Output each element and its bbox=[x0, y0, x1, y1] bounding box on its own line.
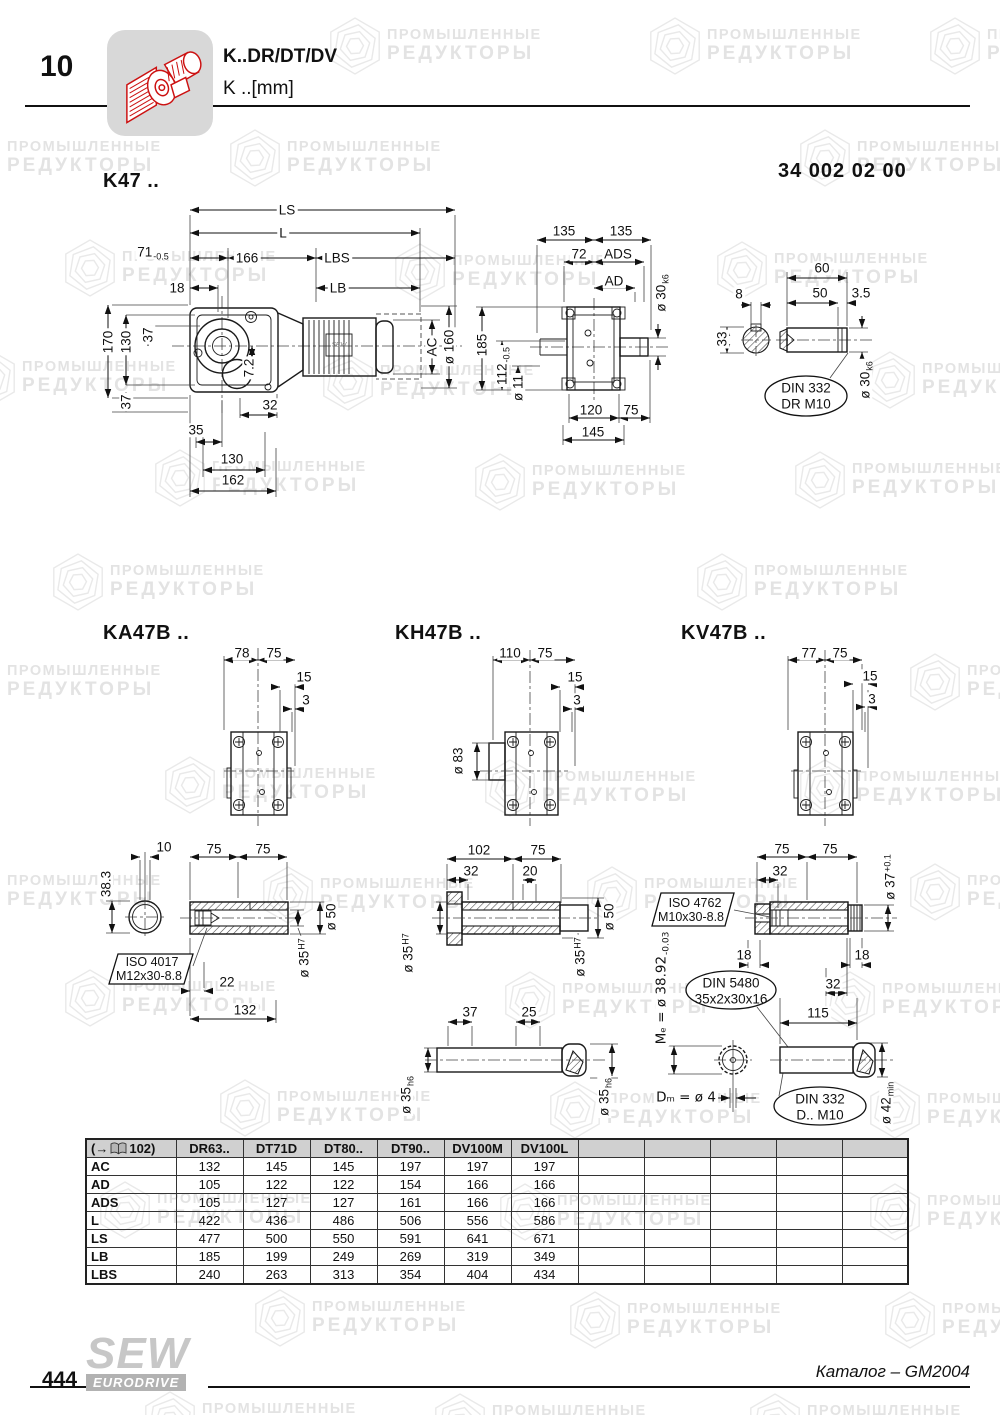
dim-label: 120 bbox=[578, 403, 605, 417]
table-cell: 434 bbox=[511, 1266, 578, 1285]
table-cell: 122 bbox=[243, 1176, 310, 1194]
dim-label: 37 bbox=[119, 392, 133, 411]
dim-label: 112-0.5 bbox=[495, 345, 509, 387]
dim-label: LS bbox=[277, 203, 298, 217]
dim-label: 32 bbox=[770, 864, 789, 878]
standard-callout: 35x2x30x16 bbox=[693, 992, 770, 1006]
dim-label: 75 bbox=[772, 842, 791, 856]
dim-label: 130 bbox=[119, 329, 133, 356]
catalog-page: ПРОМЫШЛЕННЫЕРЕДУКТОРЫПРОМЫШЛЕННЫЕРЕДУКТО… bbox=[0, 0, 1000, 1415]
table-cell-empty bbox=[644, 1266, 710, 1285]
dim-label: LBS bbox=[322, 251, 352, 265]
table-cell-empty bbox=[710, 1158, 776, 1176]
table-cell: 240 bbox=[176, 1266, 243, 1285]
table-cell: 263 bbox=[243, 1266, 310, 1285]
table-ref-cell: (→102) bbox=[86, 1139, 176, 1158]
dim-label: 185 bbox=[475, 332, 489, 359]
table-header-row: (→102)DR63..DT71DDT80..DT90..DV100MDV100… bbox=[86, 1139, 908, 1158]
table-cell-empty bbox=[842, 1230, 908, 1248]
dim-label: 75 bbox=[528, 843, 547, 857]
standard-callout: DR M10 bbox=[779, 397, 833, 411]
dim-label: 75 bbox=[535, 646, 554, 660]
table-row-label: LS bbox=[86, 1230, 176, 1248]
table-cell-empty bbox=[776, 1266, 842, 1285]
table-column-header: DR63.. bbox=[176, 1139, 243, 1158]
drawing-title-k47: K47 .. bbox=[103, 170, 159, 193]
table-cell-empty bbox=[644, 1194, 710, 1212]
table-cell-empty bbox=[842, 1266, 908, 1285]
dim-label: 170 bbox=[101, 329, 115, 356]
table-cell-empty bbox=[578, 1230, 644, 1248]
standard-callout: DIN 332 bbox=[793, 1092, 847, 1106]
dim-label: 75 bbox=[830, 646, 849, 660]
dim-label: AD bbox=[603, 274, 626, 288]
dim-label: 37 bbox=[460, 1005, 479, 1019]
table-cell: 127 bbox=[310, 1194, 377, 1212]
table-cell: 105 bbox=[176, 1176, 243, 1194]
dim-label: 102 bbox=[466, 843, 493, 857]
standard-callout: M10x30-8.8 bbox=[656, 911, 726, 924]
table-cell: 586 bbox=[511, 1212, 578, 1230]
table-cell: 154 bbox=[377, 1176, 444, 1194]
dim-label: 145 bbox=[580, 425, 607, 439]
table-cell: 550 bbox=[310, 1230, 377, 1248]
dim-label: ø 42min bbox=[879, 1080, 893, 1127]
dim-label: 32 bbox=[461, 864, 480, 878]
table-column-header-empty bbox=[578, 1139, 644, 1158]
table-cell-empty bbox=[644, 1248, 710, 1266]
table-cell: 422 bbox=[176, 1212, 243, 1230]
dim-label: 3 bbox=[866, 692, 878, 706]
dim-label: 75 bbox=[204, 842, 223, 856]
table-column-header: DT80.. bbox=[310, 1139, 377, 1158]
table-column-header: DV100L bbox=[511, 1139, 578, 1158]
table-cell: 122 bbox=[310, 1176, 377, 1194]
table-row: L422436486506556586 bbox=[86, 1212, 908, 1230]
table-cell: 197 bbox=[511, 1158, 578, 1176]
table-cell: 145 bbox=[243, 1158, 310, 1176]
dim-label: 38.3 bbox=[99, 869, 113, 899]
table-cell: 166 bbox=[444, 1176, 511, 1194]
dim-label: ø 83 bbox=[451, 745, 465, 776]
dim-label: 35 bbox=[186, 423, 205, 437]
dim-label: 15 bbox=[294, 670, 313, 684]
table-column-header: DV100M bbox=[444, 1139, 511, 1158]
dim-label: ø 11 bbox=[511, 373, 525, 403]
dim-label: ADS bbox=[602, 247, 634, 261]
dim-label: 32 bbox=[823, 977, 842, 991]
standard-callout: M12x30-8.8 bbox=[114, 970, 184, 983]
dim-label: 7.2 bbox=[242, 357, 256, 380]
table-cell: 477 bbox=[176, 1230, 243, 1248]
table-row: LS477500550591641671 bbox=[86, 1230, 908, 1248]
table-cell: 127 bbox=[243, 1194, 310, 1212]
gearmotor-icon bbox=[114, 37, 206, 129]
dim-label: ø 37+0.1 bbox=[883, 852, 897, 902]
table-cell: 313 bbox=[310, 1266, 377, 1285]
table-column-header-empty bbox=[644, 1139, 710, 1158]
dim-label: LB bbox=[328, 281, 349, 295]
table-cell: 591 bbox=[377, 1230, 444, 1248]
table-cell-empty bbox=[776, 1194, 842, 1212]
standard-callout: ISO 4762 bbox=[667, 897, 724, 910]
table-cell: 404 bbox=[444, 1266, 511, 1285]
table-cell-empty bbox=[776, 1176, 842, 1194]
dim-label: 20 bbox=[520, 864, 539, 878]
table-row-label: L bbox=[86, 1212, 176, 1230]
table-cell: 132 bbox=[176, 1158, 243, 1176]
dim-label: ø 35H7 bbox=[401, 931, 415, 975]
table-cell: 166 bbox=[511, 1194, 578, 1212]
dim-label: ø 30k6 bbox=[858, 359, 872, 401]
dim-label: 75 bbox=[621, 403, 640, 417]
dim-label: 135 bbox=[608, 224, 635, 238]
dim-label: 3 bbox=[300, 693, 312, 707]
dim-label: 8 bbox=[733, 287, 745, 301]
table-cell: 197 bbox=[377, 1158, 444, 1176]
dim-label: 10 bbox=[154, 840, 173, 854]
table-cell: 671 bbox=[511, 1230, 578, 1248]
table-row-label: LBS bbox=[86, 1266, 176, 1285]
table-cell-empty bbox=[578, 1176, 644, 1194]
drawing-title-kv47b: KV47B .. bbox=[681, 622, 766, 645]
table-cell: 185 bbox=[176, 1248, 243, 1266]
dim-label: AC bbox=[425, 336, 439, 359]
table-cell: 349 bbox=[511, 1248, 578, 1266]
dim-label: ø 50 bbox=[324, 901, 338, 932]
table-cell: 249 bbox=[310, 1248, 377, 1266]
footer-rule bbox=[208, 1386, 970, 1388]
table-cell: 436 bbox=[243, 1212, 310, 1230]
table-cell: 145 bbox=[310, 1158, 377, 1176]
table-cell: 354 bbox=[377, 1266, 444, 1285]
table-cell-empty bbox=[644, 1230, 710, 1248]
dim-label: 25 bbox=[519, 1005, 538, 1019]
dim-label: Dₘ = ø 4 bbox=[654, 1091, 718, 1105]
dim-label: ø 35H7 bbox=[573, 935, 587, 979]
dim-label: 15 bbox=[860, 669, 879, 683]
page-number: 444 bbox=[42, 1368, 77, 1392]
dim-label: 75 bbox=[264, 646, 283, 660]
table-cell-empty bbox=[578, 1158, 644, 1176]
table-cell-empty bbox=[842, 1176, 908, 1194]
dim-label: 110 bbox=[497, 646, 523, 660]
sew-eurodrive-logo: SEW EURODRIVE bbox=[86, 1334, 189, 1392]
table-row: LBS240263313354404434 bbox=[86, 1266, 908, 1285]
dim-label: L bbox=[277, 226, 289, 240]
dim-label: 18 bbox=[734, 948, 753, 962]
table-row: AD105122122154166166 bbox=[86, 1176, 908, 1194]
table-column-header: DT90.. bbox=[377, 1139, 444, 1158]
table-cell: 500 bbox=[243, 1230, 310, 1248]
table-column-header-empty bbox=[710, 1139, 776, 1158]
table-cell-empty bbox=[842, 1194, 908, 1212]
dim-label: 115 bbox=[805, 1006, 831, 1020]
dim-label: 33 bbox=[715, 329, 729, 348]
motor-brand-label: SEW bbox=[332, 342, 347, 349]
table-row-label: AC bbox=[86, 1158, 176, 1176]
dim-label: 75 bbox=[820, 842, 839, 856]
dim-label: 77 bbox=[799, 646, 818, 660]
table-cell-empty bbox=[710, 1230, 776, 1248]
table-row-label: AD bbox=[86, 1176, 176, 1194]
table-cell-empty bbox=[578, 1212, 644, 1230]
table-cell-empty bbox=[776, 1248, 842, 1266]
catalog-reference: Каталог – GM2004 bbox=[740, 1362, 970, 1382]
table-row-label: ADS bbox=[86, 1194, 176, 1212]
dim-label: 22 bbox=[217, 975, 236, 989]
table-cell-empty bbox=[710, 1266, 776, 1285]
chapter-number: 10 bbox=[40, 50, 73, 84]
catalog-book-icon bbox=[110, 1142, 127, 1155]
dim-label: 50 bbox=[810, 286, 829, 300]
table-cell: 166 bbox=[444, 1194, 511, 1212]
dim-label: 15 bbox=[565, 670, 584, 684]
table-cell: 166 bbox=[511, 1176, 578, 1194]
drawing-title-ka47b: KA47B .. bbox=[103, 622, 189, 645]
dim-label: ø 35H7 bbox=[297, 936, 311, 980]
table-row: AC132145145197197197 bbox=[86, 1158, 908, 1176]
chapter-icon-tile bbox=[107, 30, 213, 136]
table-cell-empty bbox=[776, 1212, 842, 1230]
table-column-header: DT71D bbox=[243, 1139, 310, 1158]
dim-label: 18 bbox=[167, 281, 186, 295]
table-row-label: LB bbox=[86, 1248, 176, 1266]
sew-logo-text: SEW bbox=[86, 1334, 189, 1374]
table-cell-empty bbox=[710, 1248, 776, 1266]
standard-callout: ISO 4017 bbox=[124, 956, 181, 969]
table-cell-empty bbox=[644, 1158, 710, 1176]
table-cell-empty bbox=[776, 1158, 842, 1176]
dim-label: 72 bbox=[569, 247, 588, 261]
dim-label: 132 bbox=[232, 1003, 259, 1017]
table-cell: 199 bbox=[243, 1248, 310, 1266]
page-subtitle: K ..[mm] bbox=[223, 78, 294, 100]
part-number: 34 002 02 00 bbox=[778, 160, 907, 183]
table-cell-empty bbox=[644, 1176, 710, 1194]
table-cell-empty bbox=[710, 1212, 776, 1230]
dim-label: 78 bbox=[232, 646, 251, 660]
table-cell: 641 bbox=[444, 1230, 511, 1248]
table-cell-empty bbox=[842, 1248, 908, 1266]
table-column-header-empty bbox=[776, 1139, 842, 1158]
table-cell: 197 bbox=[444, 1158, 511, 1176]
table-cell-empty bbox=[710, 1194, 776, 1212]
page-title: K..DR/DT/DV bbox=[223, 46, 337, 68]
dim-label: ø 160 bbox=[442, 328, 456, 367]
table-cell: 486 bbox=[310, 1212, 377, 1230]
drawing-title-kh47b: KH47B .. bbox=[395, 622, 481, 645]
table-cell: 556 bbox=[444, 1212, 511, 1230]
dim-label: 18 bbox=[852, 948, 871, 962]
table-cell: 161 bbox=[377, 1194, 444, 1212]
standard-callout: DIN 5480 bbox=[700, 976, 761, 990]
table-cell-empty bbox=[578, 1266, 644, 1285]
table-cell-empty bbox=[776, 1230, 842, 1248]
table-cell-empty bbox=[710, 1176, 776, 1194]
dim-label: 60 bbox=[812, 261, 831, 275]
dim-label: 162 bbox=[220, 473, 247, 487]
dim-label: 3.5 bbox=[850, 286, 873, 300]
table-cell-empty bbox=[842, 1212, 908, 1230]
table-cell: 269 bbox=[377, 1248, 444, 1266]
dim-label: ø 50 bbox=[602, 901, 616, 932]
table-cell: 319 bbox=[444, 1248, 511, 1266]
ka47b-shaft-view bbox=[106, 852, 326, 1023]
dim-label: 166 bbox=[234, 251, 261, 265]
table-row: LB185199249269319349 bbox=[86, 1248, 908, 1266]
table-cell-empty bbox=[578, 1194, 644, 1212]
dim-label: ø 35h6 bbox=[399, 1074, 413, 1116]
table-column-header-empty bbox=[842, 1139, 908, 1158]
dim-label: 32 bbox=[260, 398, 279, 412]
ka47b-flange-view bbox=[224, 648, 303, 826]
standard-callout: DIN 332 bbox=[779, 381, 833, 395]
dim-label: ø 30k6 bbox=[654, 272, 668, 314]
table-cell: 105 bbox=[176, 1194, 243, 1212]
dimension-table: (→102)DR63..DT71DDT80..DT90..DV100MDV100… bbox=[85, 1138, 909, 1285]
dim-label: 3 bbox=[571, 693, 583, 707]
kh47b-shaft-view bbox=[424, 859, 618, 1078]
dim-label: 75 bbox=[253, 842, 272, 856]
dim-label: 37 bbox=[141, 325, 155, 344]
dim-label: 71-0.5 bbox=[135, 245, 171, 259]
dim-label: ø 35h6 bbox=[597, 1076, 611, 1118]
table-row: ADS105127127161166166 bbox=[86, 1194, 908, 1212]
dim-label: 130 bbox=[219, 452, 246, 466]
table-cell-empty bbox=[578, 1248, 644, 1266]
standard-callout: D.. M10 bbox=[794, 1108, 845, 1122]
table-cell-empty bbox=[644, 1212, 710, 1230]
eurodrive-logo-band: EURODRIVE bbox=[86, 1374, 186, 1391]
table-cell-empty bbox=[842, 1158, 908, 1176]
dim-label: 135 bbox=[551, 224, 578, 238]
dim-label: Mₑ = ø 38.92-0.03 bbox=[655, 930, 669, 1047]
table-cell: 506 bbox=[377, 1212, 444, 1230]
